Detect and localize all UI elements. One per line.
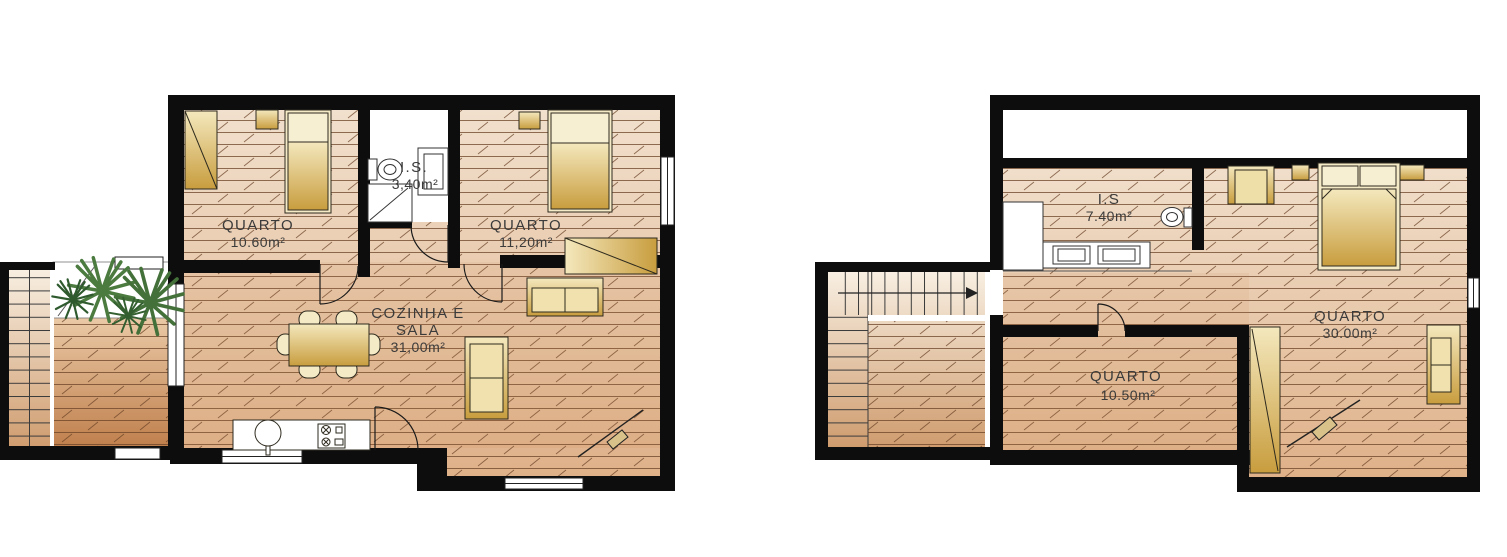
room-area: 11,20m² [499, 234, 553, 250]
shower-icon [1003, 202, 1043, 270]
terrace-deck-hatch [53, 318, 183, 448]
room-label: QUARTO [222, 217, 294, 234]
room-label: SALA [396, 322, 440, 339]
room-area: 10.60m² [231, 234, 286, 250]
room-label: COZINHA E [371, 305, 464, 322]
nightstand-icon [256, 110, 278, 129]
pillow-icon [288, 113, 328, 142]
roof-void [1003, 110, 1467, 158]
stair-landing-edge [868, 315, 985, 321]
toilet-tank-icon [368, 159, 377, 180]
pillow-icon [1360, 166, 1396, 186]
stairs-left-flight [828, 315, 868, 447]
nightstand-icon [1400, 165, 1424, 180]
bedroom3-floor-tint [1003, 273, 1249, 450]
pillow-icon [1322, 166, 1358, 186]
room-label: I.S [1098, 191, 1121, 208]
mattress-icon [288, 142, 328, 210]
room-area: 3,40m² [392, 176, 439, 192]
room-area: 30.00m² [1323, 325, 1378, 341]
room-area: 7.40m² [1086, 208, 1133, 224]
pillow-icon [551, 113, 609, 143]
nightstand-icon [519, 112, 540, 129]
stair-landing-hatch [868, 321, 985, 447]
left-floor-plan: QUARTO 10.60m² I.S. 3,40m² QUARTO 11,20m… [0, 95, 675, 491]
nightstand-icon [1292, 165, 1309, 180]
room-area: 31,00m² [391, 339, 446, 355]
kitchen-counter-icon [233, 420, 370, 450]
right-floor-plan: I.S 7.40m² QUARTO 30.00m² QUARTO 10.50m² [815, 95, 1480, 492]
right-plan-windows [1468, 278, 1479, 308]
mattress-icon [1322, 189, 1396, 266]
room-label: I.S. [400, 159, 428, 176]
floor-plan-canvas: QUARTO 10.60m² I.S. 3,40m² QUARTO 11,20m… [0, 0, 1507, 557]
room-label: QUARTO [1314, 308, 1386, 325]
window [115, 448, 160, 459]
stair-edge-strip [50, 268, 54, 448]
mattress-icon [551, 143, 609, 209]
sink-icon [255, 420, 281, 446]
floor-plan-drawing: QUARTO 10.60m² I.S. 3,40m² QUARTO 11,20m… [0, 0, 1507, 557]
room-label: QUARTO [1090, 368, 1162, 385]
tap-icon [266, 446, 270, 455]
dining-table-icon [289, 324, 369, 366]
room-label: QUARTO [490, 217, 562, 234]
toilet-tank-icon [1184, 208, 1192, 227]
room-area: 10.50m² [1101, 387, 1156, 403]
